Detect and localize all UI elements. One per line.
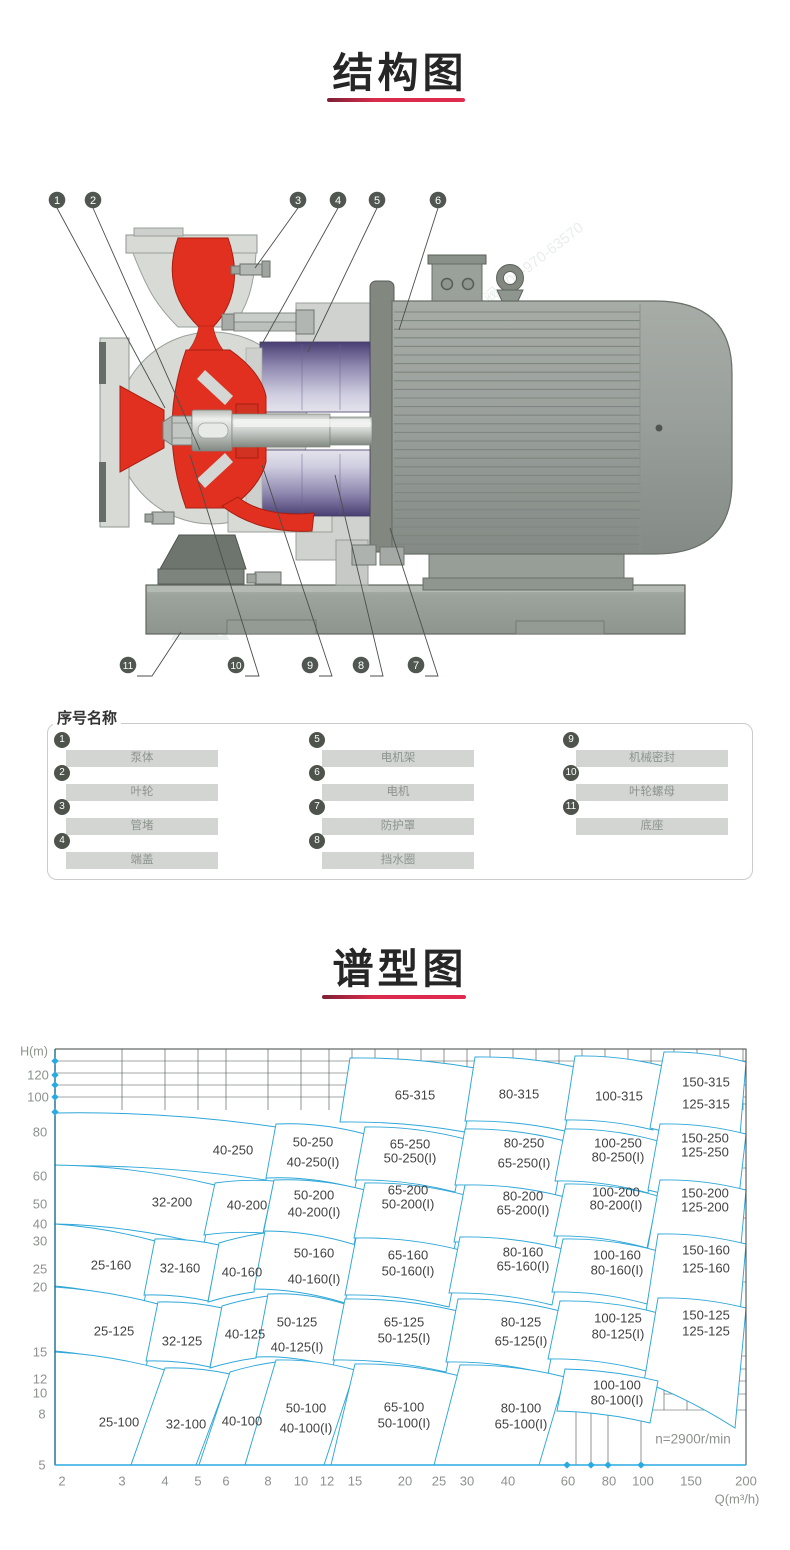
svg-text:1: 1 xyxy=(54,195,60,207)
svg-text:60: 60 xyxy=(561,1474,575,1489)
svg-text:7: 7 xyxy=(413,660,419,672)
svg-text:65-250(I): 65-250(I) xyxy=(498,1156,551,1171)
svg-text:10: 10 xyxy=(33,1386,47,1401)
svg-text:65-250: 65-250 xyxy=(390,1137,430,1152)
svg-text:2: 2 xyxy=(58,1474,65,1489)
svg-text:100-315: 100-315 xyxy=(595,1089,643,1104)
svg-text:40-250: 40-250 xyxy=(213,1143,253,1158)
svg-text:50-160(I): 50-160(I) xyxy=(382,1264,435,1279)
svg-text:100: 100 xyxy=(27,1090,49,1105)
svg-text:6: 6 xyxy=(222,1474,229,1489)
svg-text:3: 3 xyxy=(295,195,301,207)
svg-text:80-200: 80-200 xyxy=(503,1189,543,1204)
svg-text:150-200: 150-200 xyxy=(681,1186,729,1201)
svg-text:65-160: 65-160 xyxy=(388,1248,428,1263)
svg-text:100-125: 100-125 xyxy=(594,1311,642,1326)
svg-text:Q(m³/h): Q(m³/h) xyxy=(715,1492,760,1507)
svg-text:80-250(I): 80-250(I) xyxy=(592,1150,645,1165)
svg-text:5: 5 xyxy=(194,1474,201,1489)
svg-text:50: 50 xyxy=(33,1197,47,1212)
svg-text:150-125: 150-125 xyxy=(682,1308,730,1323)
svg-text:32-200: 32-200 xyxy=(152,1195,192,1210)
svg-text:40-125: 40-125 xyxy=(225,1327,265,1342)
svg-text:100-250: 100-250 xyxy=(594,1136,642,1151)
svg-text:3: 3 xyxy=(118,1474,125,1489)
svg-text:40-160(I): 40-160(I) xyxy=(288,1272,341,1287)
svg-text:65-200(I): 65-200(I) xyxy=(497,1203,550,1218)
svg-text:50-250(I): 50-250(I) xyxy=(384,1151,437,1166)
svg-text:40-160: 40-160 xyxy=(222,1265,262,1280)
svg-text:125-200: 125-200 xyxy=(681,1200,729,1215)
svg-text:25-125: 25-125 xyxy=(94,1324,134,1339)
svg-text:65-100: 65-100 xyxy=(384,1400,424,1415)
svg-text:40-200: 40-200 xyxy=(227,1198,267,1213)
svg-text:n=2900r/min: n=2900r/min xyxy=(655,1432,730,1447)
svg-text:25-100: 25-100 xyxy=(99,1415,139,1430)
svg-text:80-100(I): 80-100(I) xyxy=(591,1393,644,1408)
svg-text:30: 30 xyxy=(460,1474,474,1489)
svg-text:50-200(I): 50-200(I) xyxy=(382,1197,435,1212)
svg-text:50-200: 50-200 xyxy=(294,1188,334,1203)
svg-text:5: 5 xyxy=(374,195,380,207)
svg-text:12: 12 xyxy=(320,1474,334,1489)
svg-text:10: 10 xyxy=(294,1474,308,1489)
svg-text:40-125(I): 40-125(I) xyxy=(271,1340,324,1355)
svg-text:150-250: 150-250 xyxy=(681,1131,729,1146)
svg-text:125-125: 125-125 xyxy=(682,1324,730,1339)
svg-text:40-250(I): 40-250(I) xyxy=(287,1155,340,1170)
svg-text:32-125: 32-125 xyxy=(162,1334,202,1349)
svg-text:80-125(I): 80-125(I) xyxy=(592,1327,645,1342)
svg-text:125-315: 125-315 xyxy=(682,1097,730,1112)
svg-text:50-160: 50-160 xyxy=(294,1246,334,1261)
svg-text:65-200: 65-200 xyxy=(388,1183,428,1198)
svg-text:120: 120 xyxy=(27,1068,49,1083)
svg-text:20: 20 xyxy=(33,1280,47,1295)
svg-text:80-200(I): 80-200(I) xyxy=(590,1198,643,1213)
svg-text:40-200(I): 40-200(I) xyxy=(288,1205,341,1220)
svg-text:65-160(I): 65-160(I) xyxy=(497,1259,550,1274)
svg-text:8: 8 xyxy=(358,660,364,672)
svg-text:H(m): H(m) xyxy=(20,1045,48,1059)
svg-text:80-250: 80-250 xyxy=(504,1136,544,1151)
svg-text:50-250: 50-250 xyxy=(293,1135,333,1150)
svg-text:50-125(I): 50-125(I) xyxy=(378,1331,431,1346)
svg-text:6: 6 xyxy=(435,195,441,207)
svg-text:80-315: 80-315 xyxy=(499,1087,539,1102)
svg-text:25: 25 xyxy=(432,1474,446,1489)
svg-text:8: 8 xyxy=(38,1407,45,1422)
svg-text:80: 80 xyxy=(33,1125,47,1140)
svg-text:10: 10 xyxy=(230,661,242,672)
svg-text:40-100: 40-100 xyxy=(222,1414,262,1429)
svg-text:15: 15 xyxy=(348,1474,362,1489)
svg-text:150-315: 150-315 xyxy=(682,1075,730,1090)
svg-text:4: 4 xyxy=(161,1474,168,1489)
svg-text:32-100: 32-100 xyxy=(166,1417,206,1432)
svg-text:65-100(I): 65-100(I) xyxy=(495,1417,548,1432)
svg-text:125-160: 125-160 xyxy=(682,1261,730,1276)
svg-text:80-160: 80-160 xyxy=(503,1245,543,1260)
svg-text:50-125: 50-125 xyxy=(277,1315,317,1330)
svg-text:25: 25 xyxy=(33,1262,47,1277)
svg-text:12: 12 xyxy=(33,1372,47,1387)
svg-text:65-315: 65-315 xyxy=(395,1088,435,1103)
svg-text:65-125(I): 65-125(I) xyxy=(495,1334,548,1349)
svg-text:32-160: 32-160 xyxy=(160,1261,200,1276)
svg-text:40-100(I): 40-100(I) xyxy=(280,1421,333,1436)
svg-text:5: 5 xyxy=(38,1458,45,1473)
svg-text:40: 40 xyxy=(501,1474,515,1489)
svg-text:15: 15 xyxy=(33,1345,47,1360)
svg-text:100-100: 100-100 xyxy=(593,1378,641,1393)
svg-text:100: 100 xyxy=(632,1474,654,1489)
svg-text:125-250: 125-250 xyxy=(681,1145,729,1160)
svg-text:80-100: 80-100 xyxy=(501,1401,541,1416)
svg-text:80-125: 80-125 xyxy=(501,1315,541,1330)
svg-text:8: 8 xyxy=(264,1474,271,1489)
svg-text:30: 30 xyxy=(33,1234,47,1249)
svg-text:80-160(I): 80-160(I) xyxy=(591,1263,644,1278)
svg-text:4: 4 xyxy=(335,195,341,207)
svg-text:150-160: 150-160 xyxy=(682,1243,730,1258)
svg-text:150: 150 xyxy=(680,1474,702,1489)
svg-text:20: 20 xyxy=(398,1474,412,1489)
svg-text:80: 80 xyxy=(602,1474,616,1489)
svg-text:11: 11 xyxy=(123,661,134,672)
svg-text:100-160: 100-160 xyxy=(593,1248,641,1263)
svg-text:2: 2 xyxy=(90,195,96,207)
svg-text:50-100(I): 50-100(I) xyxy=(378,1416,431,1431)
svg-text:200: 200 xyxy=(735,1474,757,1489)
svg-text:60: 60 xyxy=(33,1169,47,1184)
svg-text:25-160: 25-160 xyxy=(91,1258,131,1273)
svg-text:50-100: 50-100 xyxy=(286,1401,326,1416)
svg-text:9: 9 xyxy=(307,660,313,672)
svg-text:40: 40 xyxy=(33,1217,47,1232)
svg-text:65-125: 65-125 xyxy=(384,1315,424,1330)
